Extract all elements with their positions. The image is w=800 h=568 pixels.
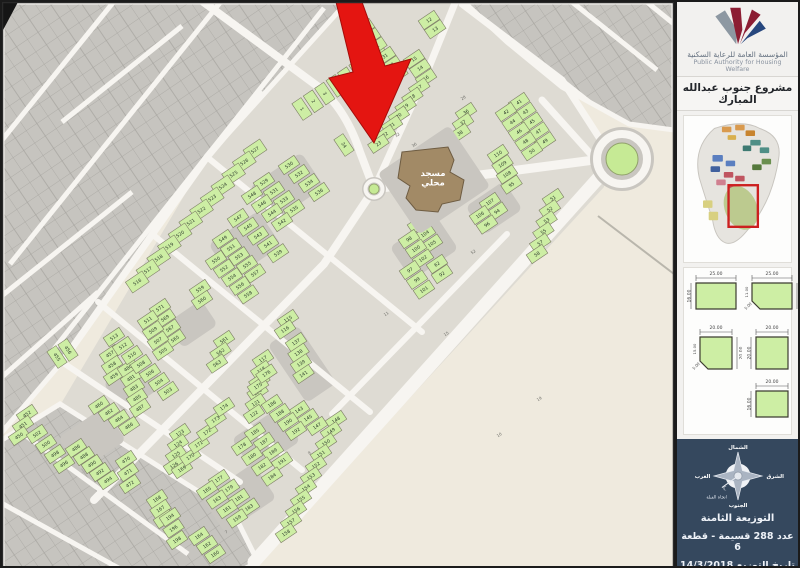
district-overview-canvas xyxy=(686,118,790,260)
project-title: مشروع جنوب عبدالله المبارك xyxy=(677,76,798,111)
district-overview-map xyxy=(683,115,792,263)
plot-diagram: 20.0016.00 xyxy=(742,378,798,432)
org-name-english: Public Authority for Housing Welfare xyxy=(681,60,794,74)
org-header: المؤسسة العامة للرعاية السكنية Public Au… xyxy=(677,2,798,73)
footer-distribution-date: تاريخ التوزيع 14/3/2018 xyxy=(680,560,795,568)
compass: ☾ الشمال الشرق الغرب الجنوب اتجاه القبلة xyxy=(690,443,786,509)
screenshot-root: 1234567891011121331333515141617181920212… xyxy=(0,0,800,568)
svg-text:20.00: 20.00 xyxy=(747,347,753,360)
plot-diagram: 25.0016.00 xyxy=(686,270,742,324)
plot-diagram: 20.0020.00 xyxy=(742,324,798,378)
svg-text:5.00: 5.00 xyxy=(691,361,701,371)
svg-text:11.00: 11.00 xyxy=(744,286,749,297)
svg-text:15.00: 15.00 xyxy=(692,343,697,354)
footer-plot-count: عدد 288 قسيمة - قطعة 6 xyxy=(677,531,798,553)
mosque-label: مسجدمحلي xyxy=(421,169,446,189)
svg-text:20.00: 20.00 xyxy=(710,325,723,331)
qibla-crescent-icon: ☾ xyxy=(722,486,728,493)
footer-distribution-name: التوزيعة الثامنة xyxy=(701,513,775,524)
roundabout-island xyxy=(606,143,638,175)
svg-text:16.00: 16.00 xyxy=(687,290,693,303)
compass-east-label: الشرق xyxy=(766,474,784,480)
svg-text:25.00: 25.00 xyxy=(710,271,723,277)
svg-text:20.00: 20.00 xyxy=(766,379,779,385)
info-sidebar: المؤسسة العامة للرعاية السكنية Public Au… xyxy=(674,2,798,568)
pahw-logo-icon xyxy=(696,6,780,46)
mini-roundabout-island xyxy=(369,184,379,194)
svg-text:20.00: 20.00 xyxy=(766,325,779,331)
compass-north-label: الشمال xyxy=(728,446,748,452)
compass-qibla-label: اتجاه القبلة xyxy=(706,496,726,501)
plot-diagram: 25.0016.0011.005.00 xyxy=(742,270,798,324)
master-plan-map: 1234567891011121331333515141617181920212… xyxy=(2,2,674,568)
svg-text:16.00: 16.00 xyxy=(747,398,753,411)
svg-text:5.00: 5.00 xyxy=(743,301,753,311)
plot-diagram: 20.0020.0015.005.00 xyxy=(686,324,742,378)
compass-west-label: الغرب xyxy=(694,474,710,480)
svg-text:25.00: 25.00 xyxy=(766,271,779,277)
plot-dimension-diagrams: 25.0016.0025.0016.0011.005.0020.0020.001… xyxy=(683,267,792,435)
distribution-footer: ☾ الشمال الشرق الغرب الجنوب اتجاه القبلة… xyxy=(677,439,798,568)
plan-map-canvas: 1234567891011121331333515141617181920212… xyxy=(2,2,674,568)
compass-south-label: الجنوب xyxy=(728,504,747,510)
